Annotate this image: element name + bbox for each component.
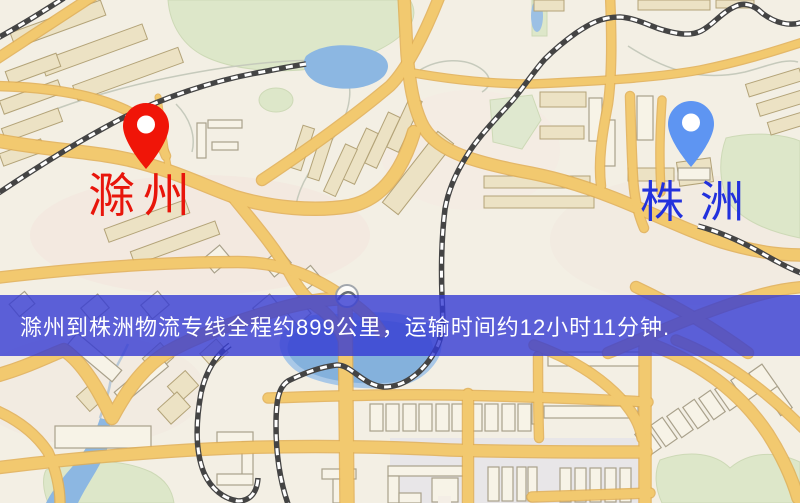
destination-pin-icon[interactable] (667, 100, 715, 168)
map-artwork (0, 0, 800, 503)
route-info-text: 滁州到株洲物流专线全程约899公里，运输时间约12小时11分钟. (20, 310, 670, 342)
route-info-banner: 滁州到株洲物流专线全程约899公里，运输时间约12小时11分钟. (0, 295, 800, 356)
destination-city-label: 株洲 (640, 181, 760, 225)
map-canvas[interactable]: 滁州到株洲物流专线全程约899公里，运输时间约12小时11分钟. 滁州 株洲 (0, 0, 800, 503)
origin-city-label: 滁州 (88, 174, 198, 221)
origin-pin-icon[interactable] (122, 102, 170, 170)
